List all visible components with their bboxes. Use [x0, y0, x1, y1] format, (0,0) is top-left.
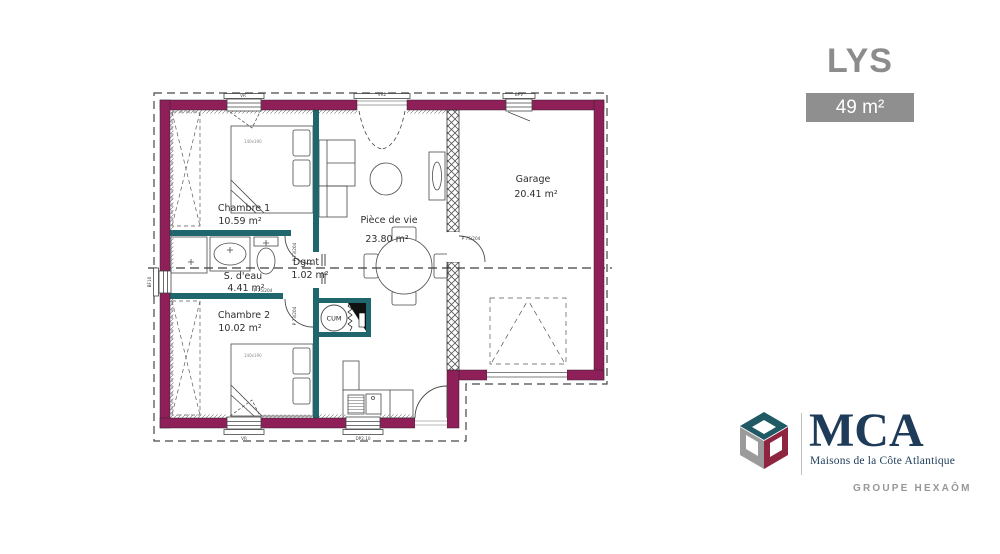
area-dgmt: 1.02 m² [291, 270, 328, 281]
garage-door [487, 298, 567, 380]
area-chambre2: 10.02 m² [218, 323, 261, 334]
area-badge: 49 m² [806, 93, 914, 122]
tag-window-bottom-left: VR [241, 436, 247, 441]
tag-window-top-left: VR [240, 93, 246, 98]
label-piece-de-vie: Pièce de vie [360, 215, 417, 226]
tag-door-chambre2: P 73/204 [292, 306, 297, 325]
kitchen-counter [343, 361, 413, 418]
area-piece-de-vie: 23.80 m² [365, 234, 408, 245]
mca-logo: MCA Maisons de la Côte Atlantique GROUPE… [733, 403, 973, 508]
label-sdeau: S. d'eau [224, 271, 262, 282]
page-background: LYS 49 m² 140x190 [0, 0, 1000, 554]
logo-group-name: GROUPE HEXAÔM [853, 483, 972, 494]
window-chambre1 [224, 94, 264, 129]
sofa [319, 140, 355, 217]
logo-tagline: Maisons de la Côte Atlantique [810, 455, 980, 467]
plan-title: LYS [800, 42, 920, 81]
tag-door-sdeau: P 75/204 [254, 288, 273, 293]
window-kitchen [343, 417, 383, 435]
area-garage: 20.41 m² [514, 189, 557, 200]
tag-window-bottom-ctr: DP2.10 [355, 436, 370, 441]
tag-door-chambre1: P 73/204 [292, 242, 297, 261]
entrance-door [415, 386, 447, 428]
water-heater-label: CUM [327, 315, 342, 323]
mca-cube-icon [733, 409, 795, 473]
tag-door-garage: P 75/204 [462, 236, 481, 241]
wardrobe-chambre2 [172, 301, 200, 415]
area-chambre1: 10.59 m² [218, 216, 261, 227]
washbasin [210, 237, 250, 271]
label-chambre2: Chambre 2 [218, 310, 270, 321]
tag-window-top-center: VR2 [378, 92, 387, 97]
logo-divider [801, 413, 802, 475]
logo-acronym: MCA [809, 403, 979, 458]
label-chambre1: Chambre 1 [218, 203, 270, 214]
tag-window-top-right: BPV [515, 92, 523, 97]
tv-unit [429, 152, 445, 200]
wardrobe-chambre1 [172, 112, 200, 226]
label-garage: Garage [516, 174, 551, 185]
floor-plan: 140x190 140x190 [140, 82, 620, 452]
french-door [354, 94, 410, 150]
window-sdeau [154, 268, 172, 296]
water-heater: CUM [321, 305, 347, 331]
technical-duct [348, 303, 366, 331]
door-chambre2 [285, 299, 313, 327]
bed1-size-label: 140x190 [244, 139, 262, 144]
tag-window-left: BF10 [147, 276, 152, 287]
bed2-size-label: 140x190 [244, 353, 262, 358]
window-garage [503, 94, 535, 122]
coffee-table [370, 163, 402, 195]
